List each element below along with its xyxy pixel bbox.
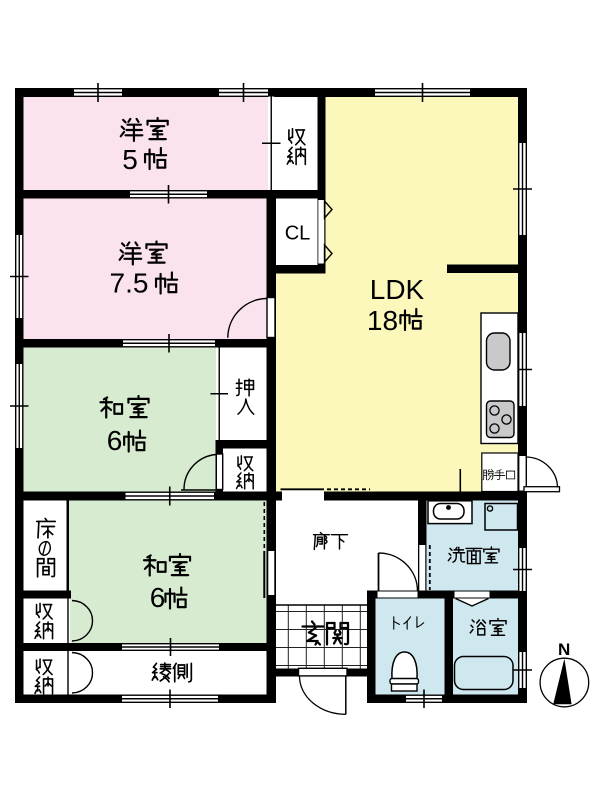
svg-text:7.5: 7.5 bbox=[110, 268, 149, 299]
svg-text:18: 18 bbox=[367, 305, 398, 336]
svg-text:6: 6 bbox=[150, 582, 166, 613]
svg-text:5: 5 bbox=[122, 144, 138, 175]
svg-text:6: 6 bbox=[107, 425, 123, 456]
svg-text:CL: CL bbox=[285, 223, 311, 245]
svg-text:N: N bbox=[558, 640, 570, 659]
svg-text:LDK: LDK bbox=[370, 274, 425, 305]
